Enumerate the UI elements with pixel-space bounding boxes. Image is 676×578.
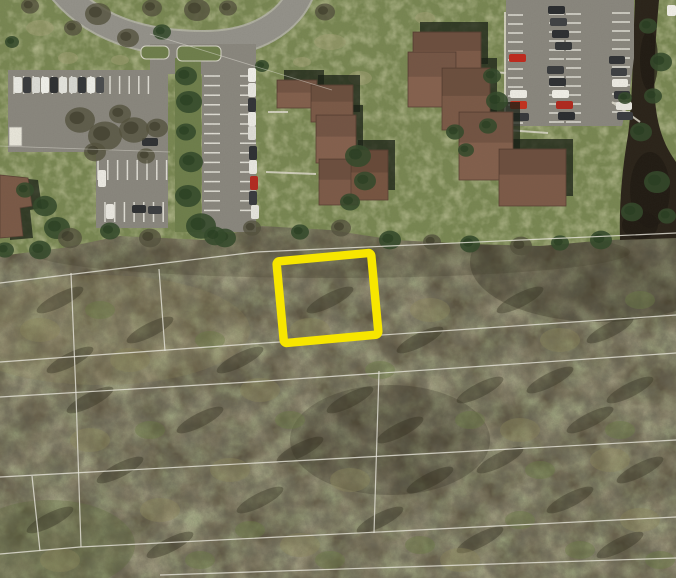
- aerial-imagery-canvas[interactable]: [0, 0, 676, 578]
- grain: [0, 0, 676, 578]
- aerial-map-viewport[interactable]: [0, 0, 676, 578]
- image-grain-overlay: [0, 0, 676, 578]
